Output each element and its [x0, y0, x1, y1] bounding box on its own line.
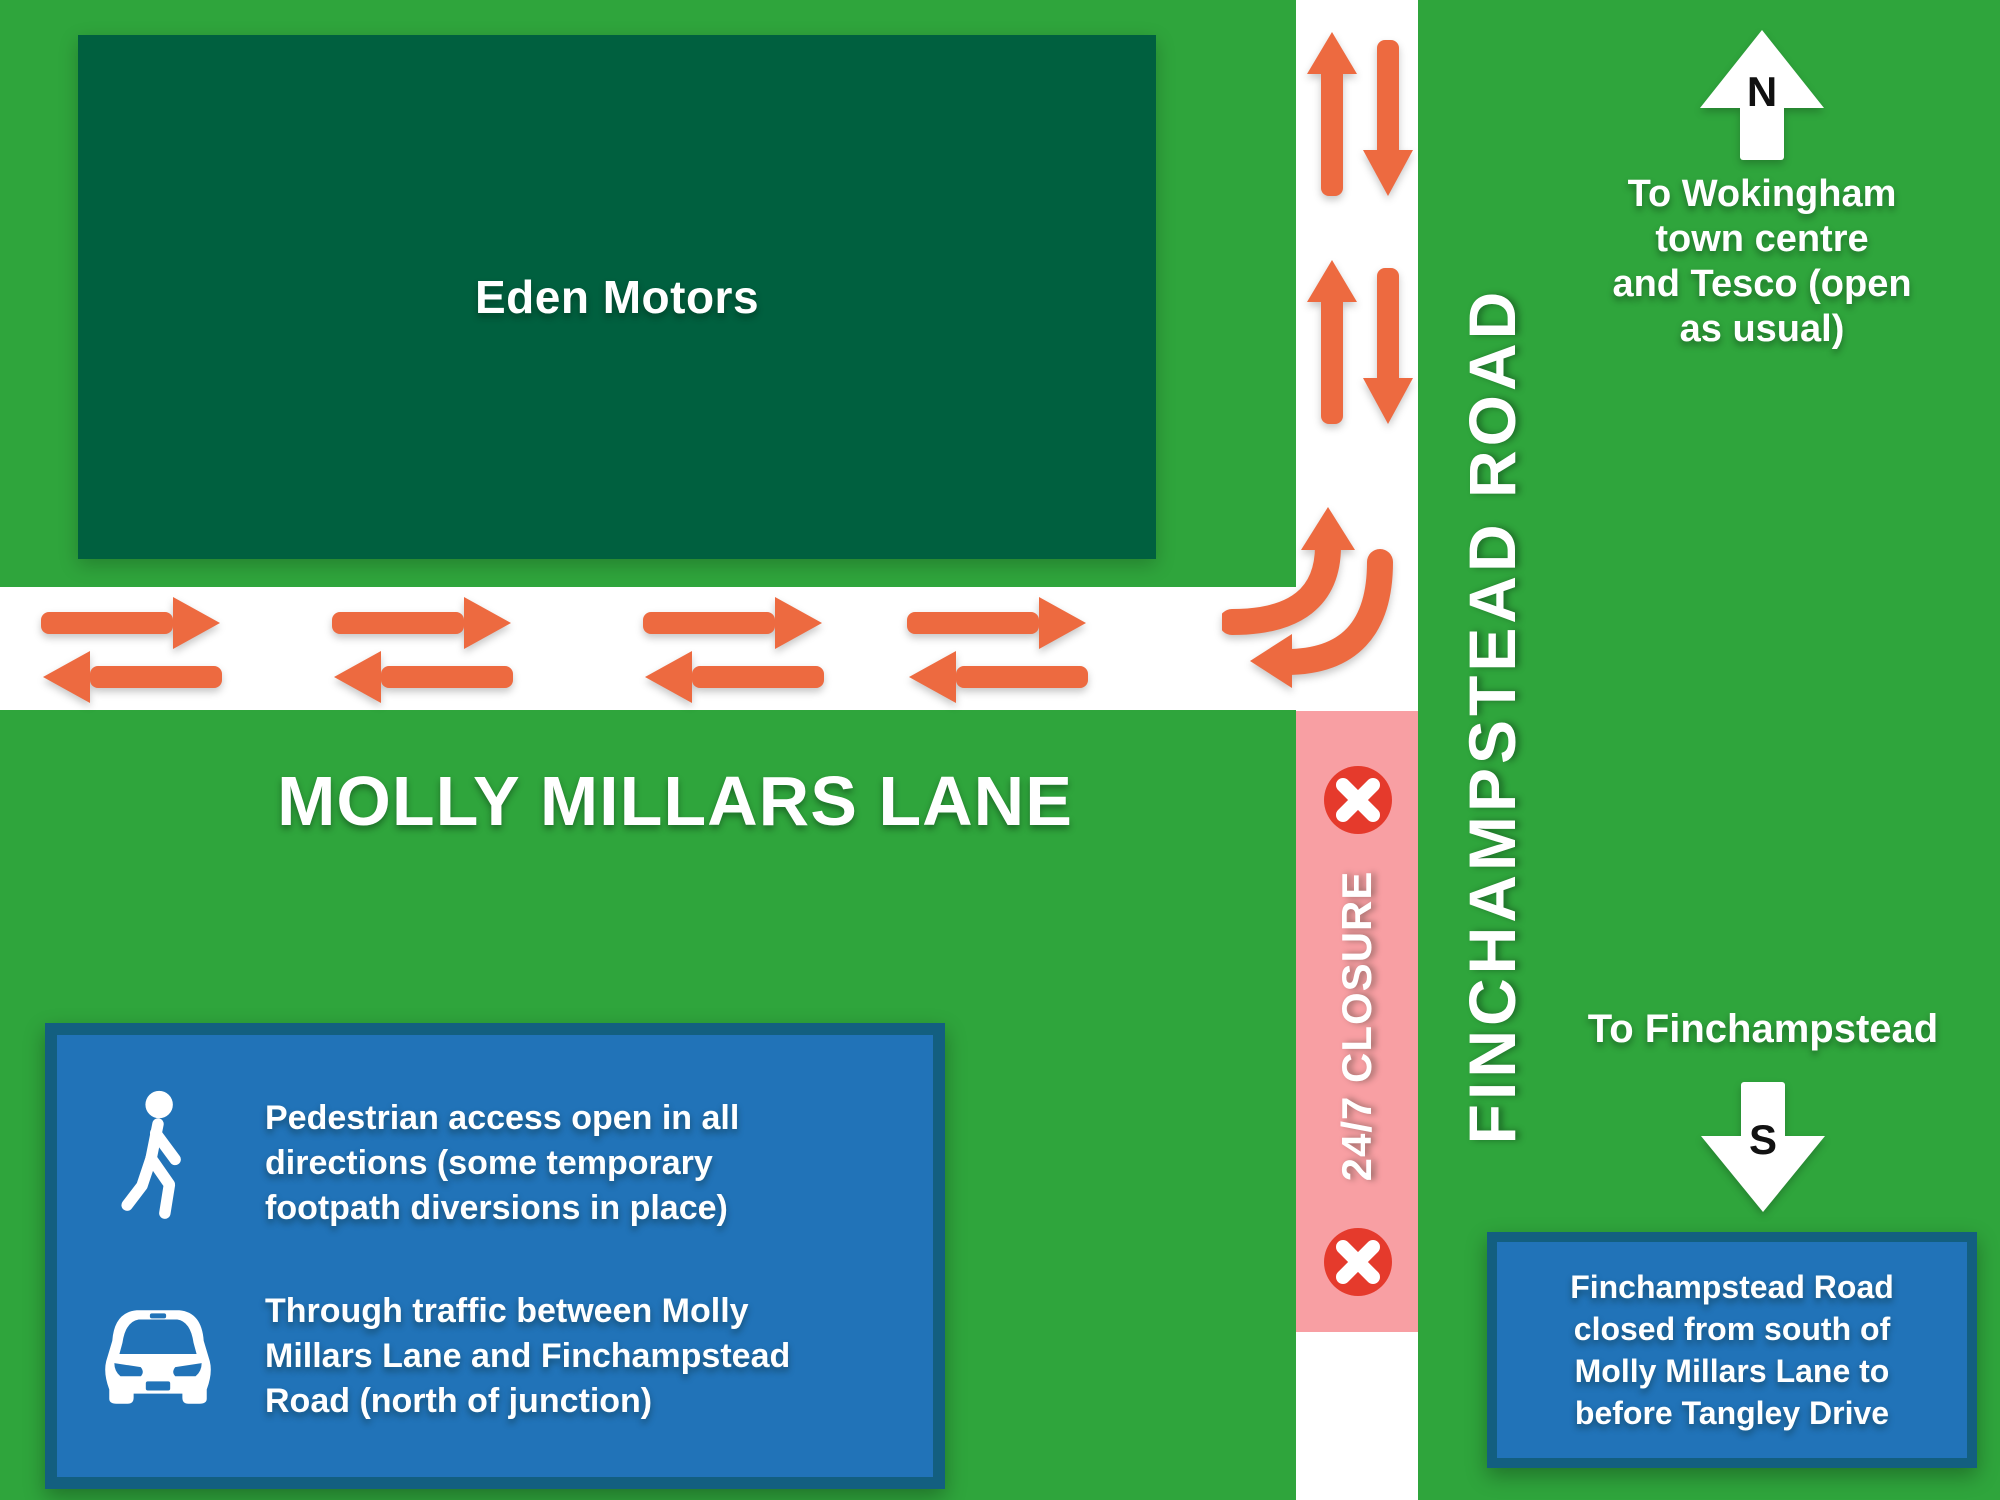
- finchampstead-road-south-segment: [1296, 1332, 1418, 1500]
- pedestrian-icon: [83, 1089, 233, 1239]
- two-way-traffic-icon: [641, 594, 826, 706]
- through-traffic-row: Through traffic between Molly Millars La…: [83, 1289, 907, 1424]
- two-way-traffic-icon: [905, 594, 1090, 706]
- pedestrian-access-row: Pedestrian access open in all directions…: [83, 1089, 907, 1239]
- pedestrian-note: Pedestrian access open in all directions…: [265, 1096, 739, 1231]
- two-way-traffic-icon: [1305, 28, 1415, 203]
- north-letter: N: [1700, 70, 1824, 114]
- eden-motors-building: Eden Motors: [78, 35, 1156, 559]
- closure-detail-box: Finchampstead Road closed from south of …: [1487, 1232, 1977, 1468]
- junction-turn-arrows-icon: [1222, 492, 1422, 692]
- two-way-traffic-icon: [39, 594, 224, 706]
- two-way-traffic-icon: [330, 594, 515, 706]
- closure-247-label: 24/7 CLOSURE: [1334, 861, 1380, 1191]
- to-wokingham-text: To Wokingham town centre and Tesco (open…: [1512, 172, 2000, 352]
- road-closed-icon: [1318, 1222, 1398, 1302]
- closure-detail-text: Finchampstead Road closed from south of …: [1570, 1266, 1894, 1434]
- to-finchampstead-text: To Finchampstead: [1513, 1006, 2000, 1052]
- access-info-box: Pedestrian access open in all directions…: [45, 1023, 945, 1489]
- road-closure-map: Eden Motors: [0, 0, 2000, 1500]
- through-traffic-note: Through traffic between Molly Millars La…: [265, 1289, 790, 1424]
- molly-millars-lane-label: MOLLY MILLARS LANE: [260, 764, 1090, 838]
- south-letter: S: [1701, 1118, 1825, 1162]
- car-icon: [83, 1300, 233, 1412]
- two-way-traffic-icon: [1305, 256, 1415, 431]
- eden-motors-label: Eden Motors: [475, 270, 759, 324]
- road-closed-icon: [1318, 760, 1398, 840]
